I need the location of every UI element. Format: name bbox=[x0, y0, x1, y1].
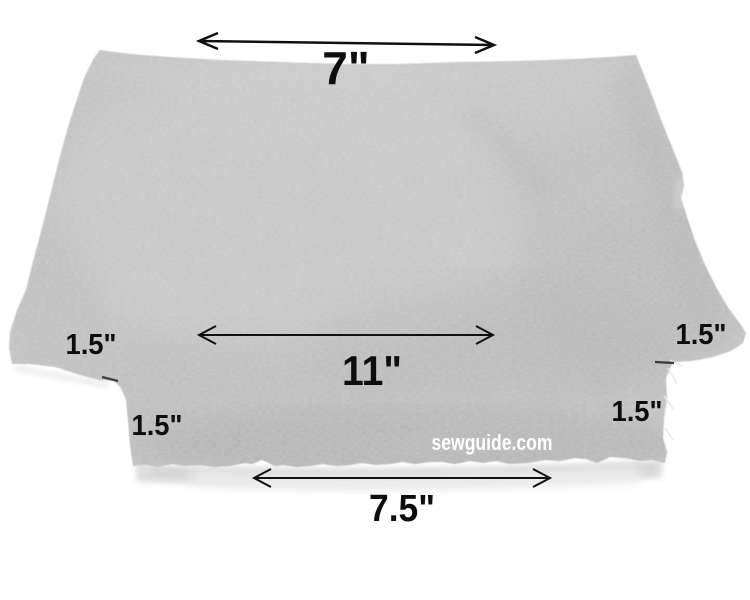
svg-text:11": 11" bbox=[342, 347, 402, 394]
svg-text:7": 7" bbox=[322, 42, 369, 94]
svg-text:7.5": 7.5" bbox=[369, 488, 435, 530]
svg-text:1.5": 1.5" bbox=[612, 396, 663, 428]
svg-text:1.5": 1.5" bbox=[66, 329, 117, 361]
svg-text:1.5": 1.5" bbox=[676, 319, 727, 351]
svg-text:sewguide.com: sewguide.com bbox=[432, 430, 553, 455]
svg-text:1.5": 1.5" bbox=[132, 410, 183, 442]
